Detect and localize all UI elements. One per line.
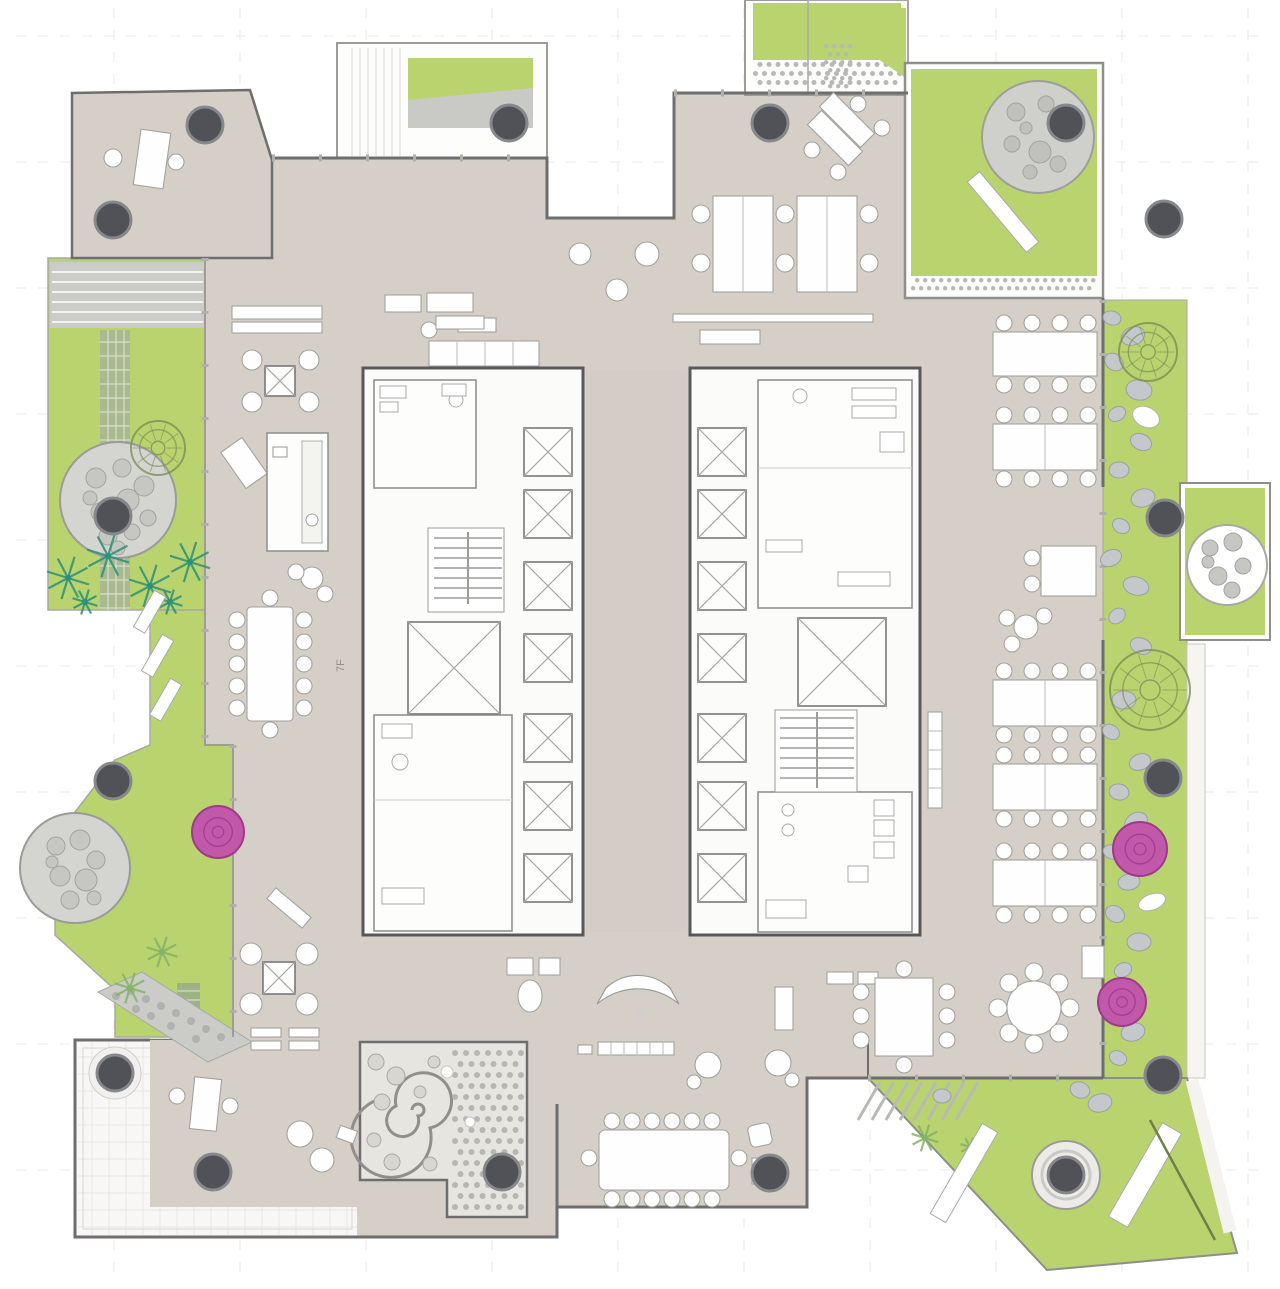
fixture-basin (392, 754, 408, 770)
armchair (747, 1122, 773, 1148)
fixture-basin (782, 824, 794, 836)
fixture (442, 384, 466, 396)
shaft-room-west (408, 622, 500, 714)
copier (775, 987, 793, 1030)
fixture (880, 432, 904, 452)
table-ring (765, 1050, 791, 1076)
wc-toilet (518, 980, 542, 1012)
fixture (874, 800, 894, 816)
huddle-table (1014, 615, 1038, 639)
floor-plan-svg: 7F (0, 0, 1280, 1289)
chair (421, 322, 437, 338)
table-ring (569, 243, 591, 265)
fixture-basin (793, 389, 807, 403)
shelf (232, 322, 322, 333)
table-ring (695, 1052, 721, 1078)
bench-seat (251, 1028, 281, 1037)
fixture (852, 406, 896, 418)
desk-sw (189, 1077, 221, 1132)
fixture (848, 866, 868, 882)
floor-sw-room (150, 1040, 357, 1207)
table-ring (635, 242, 659, 266)
walkway-east (1187, 644, 1205, 1078)
fixture (382, 724, 412, 738)
fixture (380, 386, 406, 398)
meeting-table-west (247, 607, 293, 721)
fixture (766, 540, 802, 552)
sideboard (827, 972, 853, 984)
cabinet-row (429, 341, 539, 366)
labels: 7F (335, 659, 347, 672)
fixture (874, 820, 894, 836)
lockers (928, 712, 942, 808)
bench-seat (251, 1041, 281, 1050)
fixture (382, 888, 424, 904)
fixture (766, 900, 806, 918)
dining-table (875, 978, 933, 1056)
bench-seat (289, 1041, 319, 1050)
fixture (380, 402, 398, 412)
corridor-tint (586, 371, 687, 932)
stair-west (428, 528, 504, 612)
copy-desk (427, 293, 473, 312)
cabinet (700, 330, 760, 344)
lounge-pouf (287, 1121, 313, 1147)
desk (1041, 546, 1096, 596)
table-ring (606, 279, 628, 301)
sink (306, 514, 318, 526)
floor-plan-canvas: 7F (0, 0, 1280, 1289)
plant-pot (169, 1088, 185, 1104)
wc-vanity (507, 958, 533, 975)
bench-seat (289, 1028, 319, 1037)
cabinet (436, 316, 484, 329)
counter-end (578, 1045, 592, 1054)
copy-desk (385, 295, 421, 312)
conference-table (599, 1130, 729, 1190)
shelf (232, 306, 322, 319)
chair (168, 154, 184, 170)
pantry-counter (302, 441, 322, 543)
reception-chair (635, 1009, 645, 1019)
cores (363, 368, 920, 935)
wc-vanity (539, 958, 560, 975)
lounge-pouf (310, 1148, 334, 1172)
pantry-item (273, 447, 287, 457)
floor-plan-page: 7F (0, 0, 1280, 1289)
fixture (838, 572, 890, 586)
chair (222, 1098, 238, 1114)
sideboard (1082, 946, 1104, 978)
shaft-room-east (798, 618, 886, 706)
cafe-table-x (263, 962, 295, 994)
floor-label: 7F (335, 659, 347, 672)
fixture (874, 842, 894, 858)
fixture (852, 388, 896, 400)
fixture-basin (782, 804, 794, 816)
shelf-long (673, 314, 873, 322)
workbench (993, 332, 1097, 376)
table-x (265, 366, 295, 396)
plant-pot (104, 149, 122, 167)
